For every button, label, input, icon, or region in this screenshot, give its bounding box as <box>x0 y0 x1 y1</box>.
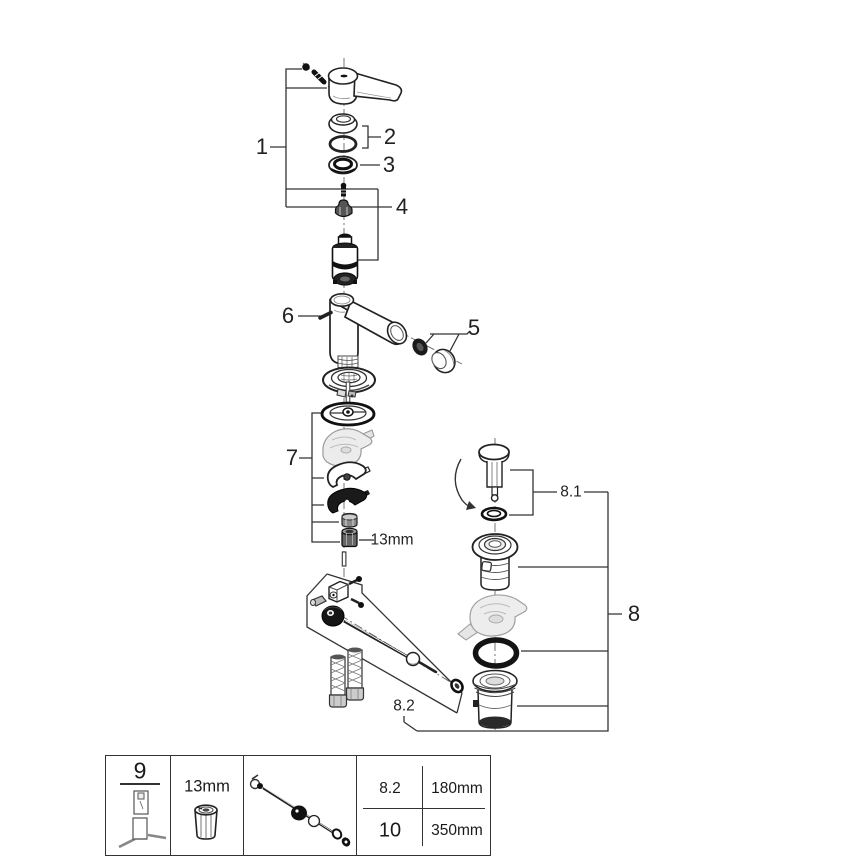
socket-nut-drawing <box>171 756 244 854</box>
o-ring-small-drawing <box>330 137 356 152</box>
spec-divider-vertical <box>422 766 423 846</box>
part-label-8-1: 8.1 <box>560 484 582 500</box>
drain-plug-drawing <box>479 445 509 502</box>
sleeve-nut-drawing <box>342 528 357 546</box>
part-label-8-2: 8.2 <box>393 698 415 714</box>
wrench-size-note: 13mm <box>370 532 413 548</box>
part-label-4: 4 <box>396 196 408 218</box>
part-label-1: 1 <box>256 136 268 158</box>
pivot-pin-drawing <box>342 552 346 566</box>
part-label-8: 8 <box>628 603 640 625</box>
plug-seal-drawing <box>482 508 506 520</box>
handle-fixing-screw-drawing <box>302 63 324 82</box>
pivot-seal-disc-drawing <box>322 606 344 626</box>
part-label-7: 7 <box>286 447 298 469</box>
lever-handle-drawing <box>329 68 402 104</box>
wedge-gasket-drawing <box>323 429 374 466</box>
part-label-3: 3 <box>383 154 395 176</box>
drain-lower-body-drawing <box>473 671 517 729</box>
rod-end-ring-drawing <box>449 678 465 694</box>
supply-hoses-drawing <box>330 648 364 708</box>
aerator-cap-drawing <box>429 345 460 376</box>
cartridge-drawing <box>333 234 358 286</box>
exploded-parts-diagram: 1 2 3 4 5 6 7 8 8.1 8.2 13mm 9 13mm <box>0 0 868 868</box>
table-cell-rod <box>244 756 357 855</box>
table-cell-tool: 9 <box>106 756 171 855</box>
cartridge-cap-nut-drawing <box>336 200 353 217</box>
diagram-canvas <box>0 0 868 868</box>
cap-ring-drawing <box>329 114 357 133</box>
spec-ref-8-2: 8.2 <box>379 780 401 798</box>
spec-length-8-2: 180mm <box>431 780 483 798</box>
table-cell-specs: 8.2 180mm 10 350mm <box>357 756 490 855</box>
cartridge-screw-drawing <box>341 183 347 197</box>
bearing-ring-drawing <box>329 157 357 174</box>
drain-wedge-gasket-drawing <box>458 595 527 640</box>
pivot-fitting-drawing <box>311 596 327 606</box>
drain-flange-drawing <box>473 534 518 590</box>
mounting-nut-drawing <box>342 514 357 528</box>
aerator-seal-drawing <box>409 336 430 359</box>
part-label-2: 2 <box>384 126 396 148</box>
oring-guide-drawing <box>322 403 374 425</box>
clamp-lower-drawing <box>328 488 370 513</box>
mounting-tool-drawing <box>106 756 171 854</box>
clamp-upper-drawing <box>328 462 370 487</box>
pull-rod-kit-drawing <box>244 756 357 854</box>
spec-length-10: 350mm <box>431 822 483 840</box>
parts-table: 9 13mm <box>105 755 491 856</box>
part-label-5: 5 <box>468 317 480 339</box>
part-label-6: 6 <box>282 305 294 327</box>
callout-lines <box>270 69 622 731</box>
spec-divider-horizontal <box>363 808 485 809</box>
spec-ref-10: 10 <box>379 820 401 843</box>
rotation-arrow-icon <box>455 459 476 510</box>
table-cell-socket: 13mm <box>171 756 244 855</box>
faucet-body-drawing <box>320 294 410 364</box>
drain-o-ring-drawing <box>476 640 517 666</box>
